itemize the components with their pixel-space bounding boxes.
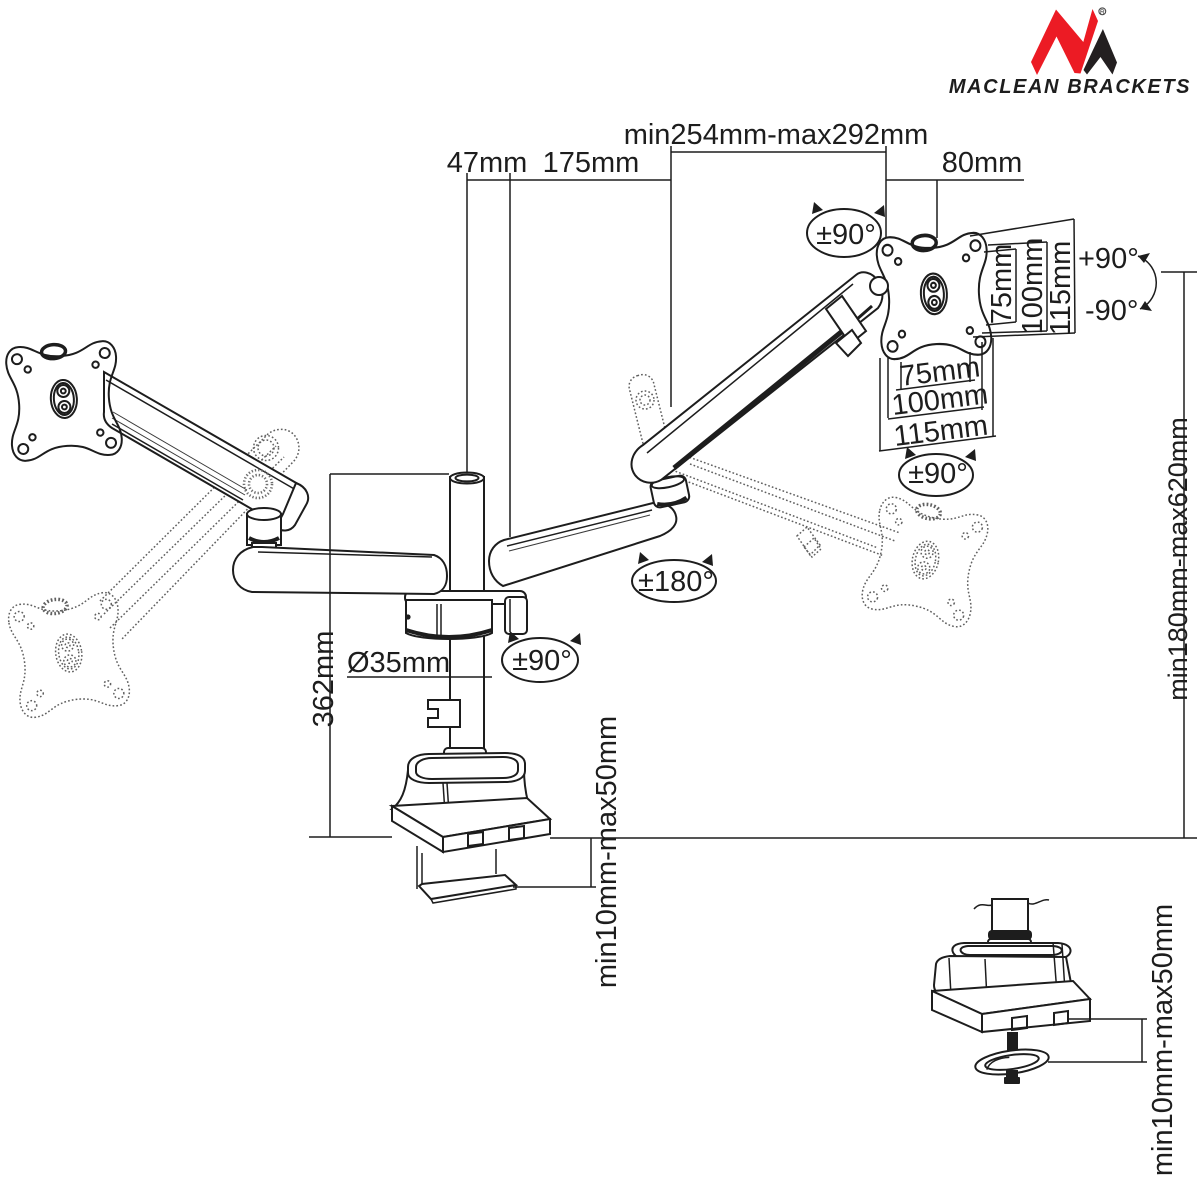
svg-text:min254mm-max292mm: min254mm-max292mm xyxy=(624,119,929,151)
svg-text:±90°: ±90° xyxy=(816,219,876,251)
svg-text:Ø35mm: Ø35mm xyxy=(347,647,450,679)
svg-text:±90°: ±90° xyxy=(512,645,572,677)
svg-text:47mm: 47mm xyxy=(447,147,528,179)
svg-text:115mm: 115mm xyxy=(1045,241,1077,336)
svg-text:R: R xyxy=(1100,9,1105,16)
svg-text:MACLEAN BRACKETS: MACLEAN BRACKETS xyxy=(949,76,1191,98)
svg-text:80mm: 80mm xyxy=(942,147,1023,179)
svg-text:75mm: 75mm xyxy=(986,244,1018,325)
svg-text:min10mm-max50mm: min10mm-max50mm xyxy=(591,716,623,988)
svg-text:+90°: +90° xyxy=(1078,243,1139,275)
svg-text:175mm: 175mm xyxy=(543,147,640,179)
svg-text:-90°: -90° xyxy=(1085,295,1139,327)
svg-text:362mm: 362mm xyxy=(308,631,340,728)
svg-text:±180°: ±180° xyxy=(638,566,714,598)
svg-text:min180mm-max620mm: min180mm-max620mm xyxy=(1163,417,1193,701)
svg-text:±90°: ±90° xyxy=(908,458,968,490)
svg-text:min10mm-max50mm: min10mm-max50mm xyxy=(1147,904,1179,1176)
